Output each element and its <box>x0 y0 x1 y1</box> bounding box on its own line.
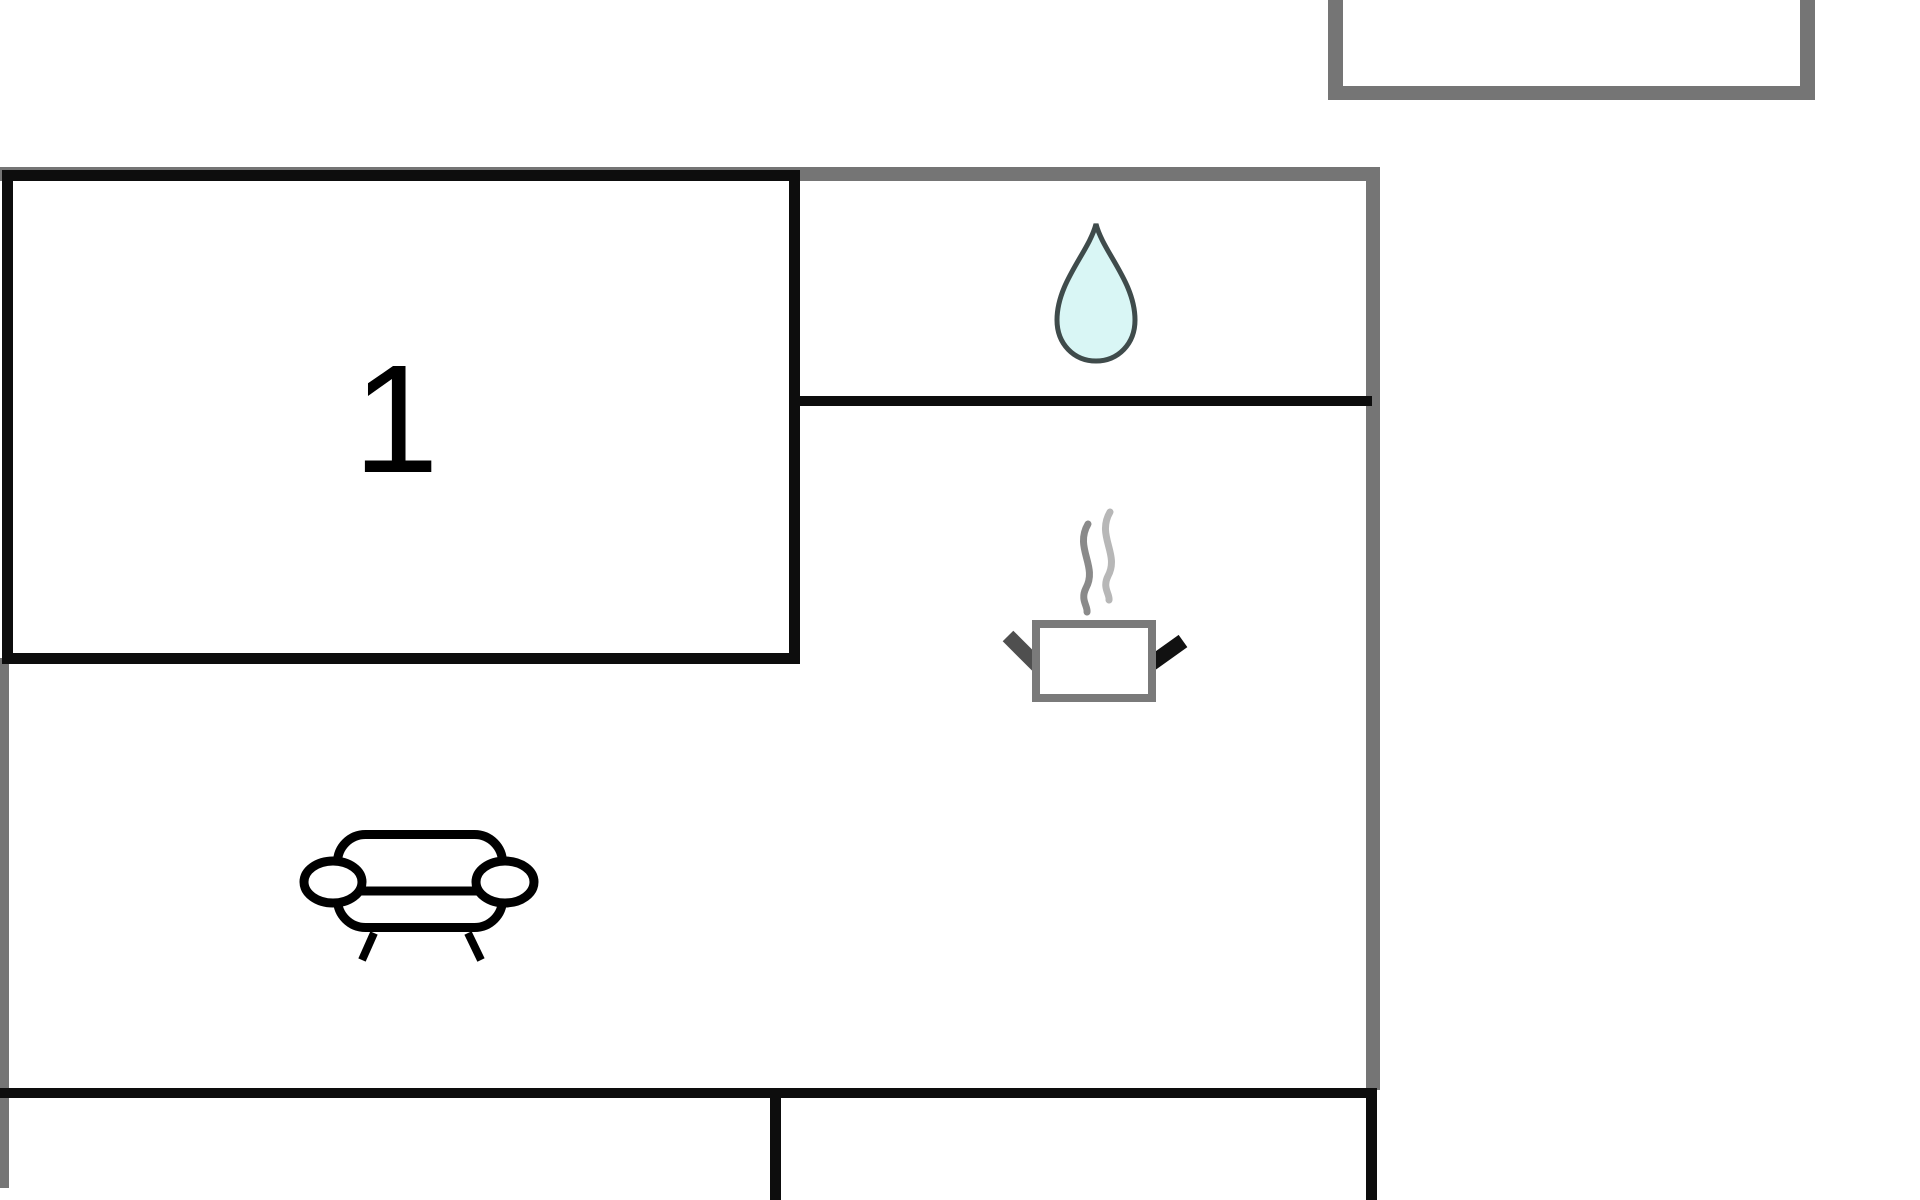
water-drop-icon <box>1057 224 1135 361</box>
steam-wisp-right <box>1105 512 1111 600</box>
floor-plan: 1 <box>0 0 1920 1200</box>
bottom-divider-wall <box>770 1088 781 1200</box>
floor-plan-canvas: 1 <box>0 0 1920 1200</box>
bathroom-bottom-wall <box>794 396 1372 406</box>
top-right-partial-room <box>1328 0 1815 100</box>
room1-label: 1 <box>353 333 439 505</box>
exterior-left-wall-lower <box>0 658 9 1188</box>
steam-wisp-left <box>1083 524 1089 612</box>
sofa-leg-left <box>362 933 374 960</box>
bottom-right-wall <box>1366 1096 1377 1200</box>
sofa-leg-right <box>468 933 481 960</box>
top-right-room-right-wall <box>1800 0 1815 100</box>
sofa-armrest-left <box>304 861 362 903</box>
exterior-right-wall <box>1366 174 1380 1090</box>
top-right-room-left-wall <box>1328 0 1343 100</box>
sofa-icon <box>304 835 534 961</box>
bottom-horizontal-wall <box>0 1088 1377 1098</box>
pot-body <box>1036 624 1152 698</box>
sofa-armrest-right <box>476 861 534 903</box>
steaming-pot-icon <box>1008 512 1183 698</box>
top-right-room-bottom-wall <box>1328 86 1815 100</box>
